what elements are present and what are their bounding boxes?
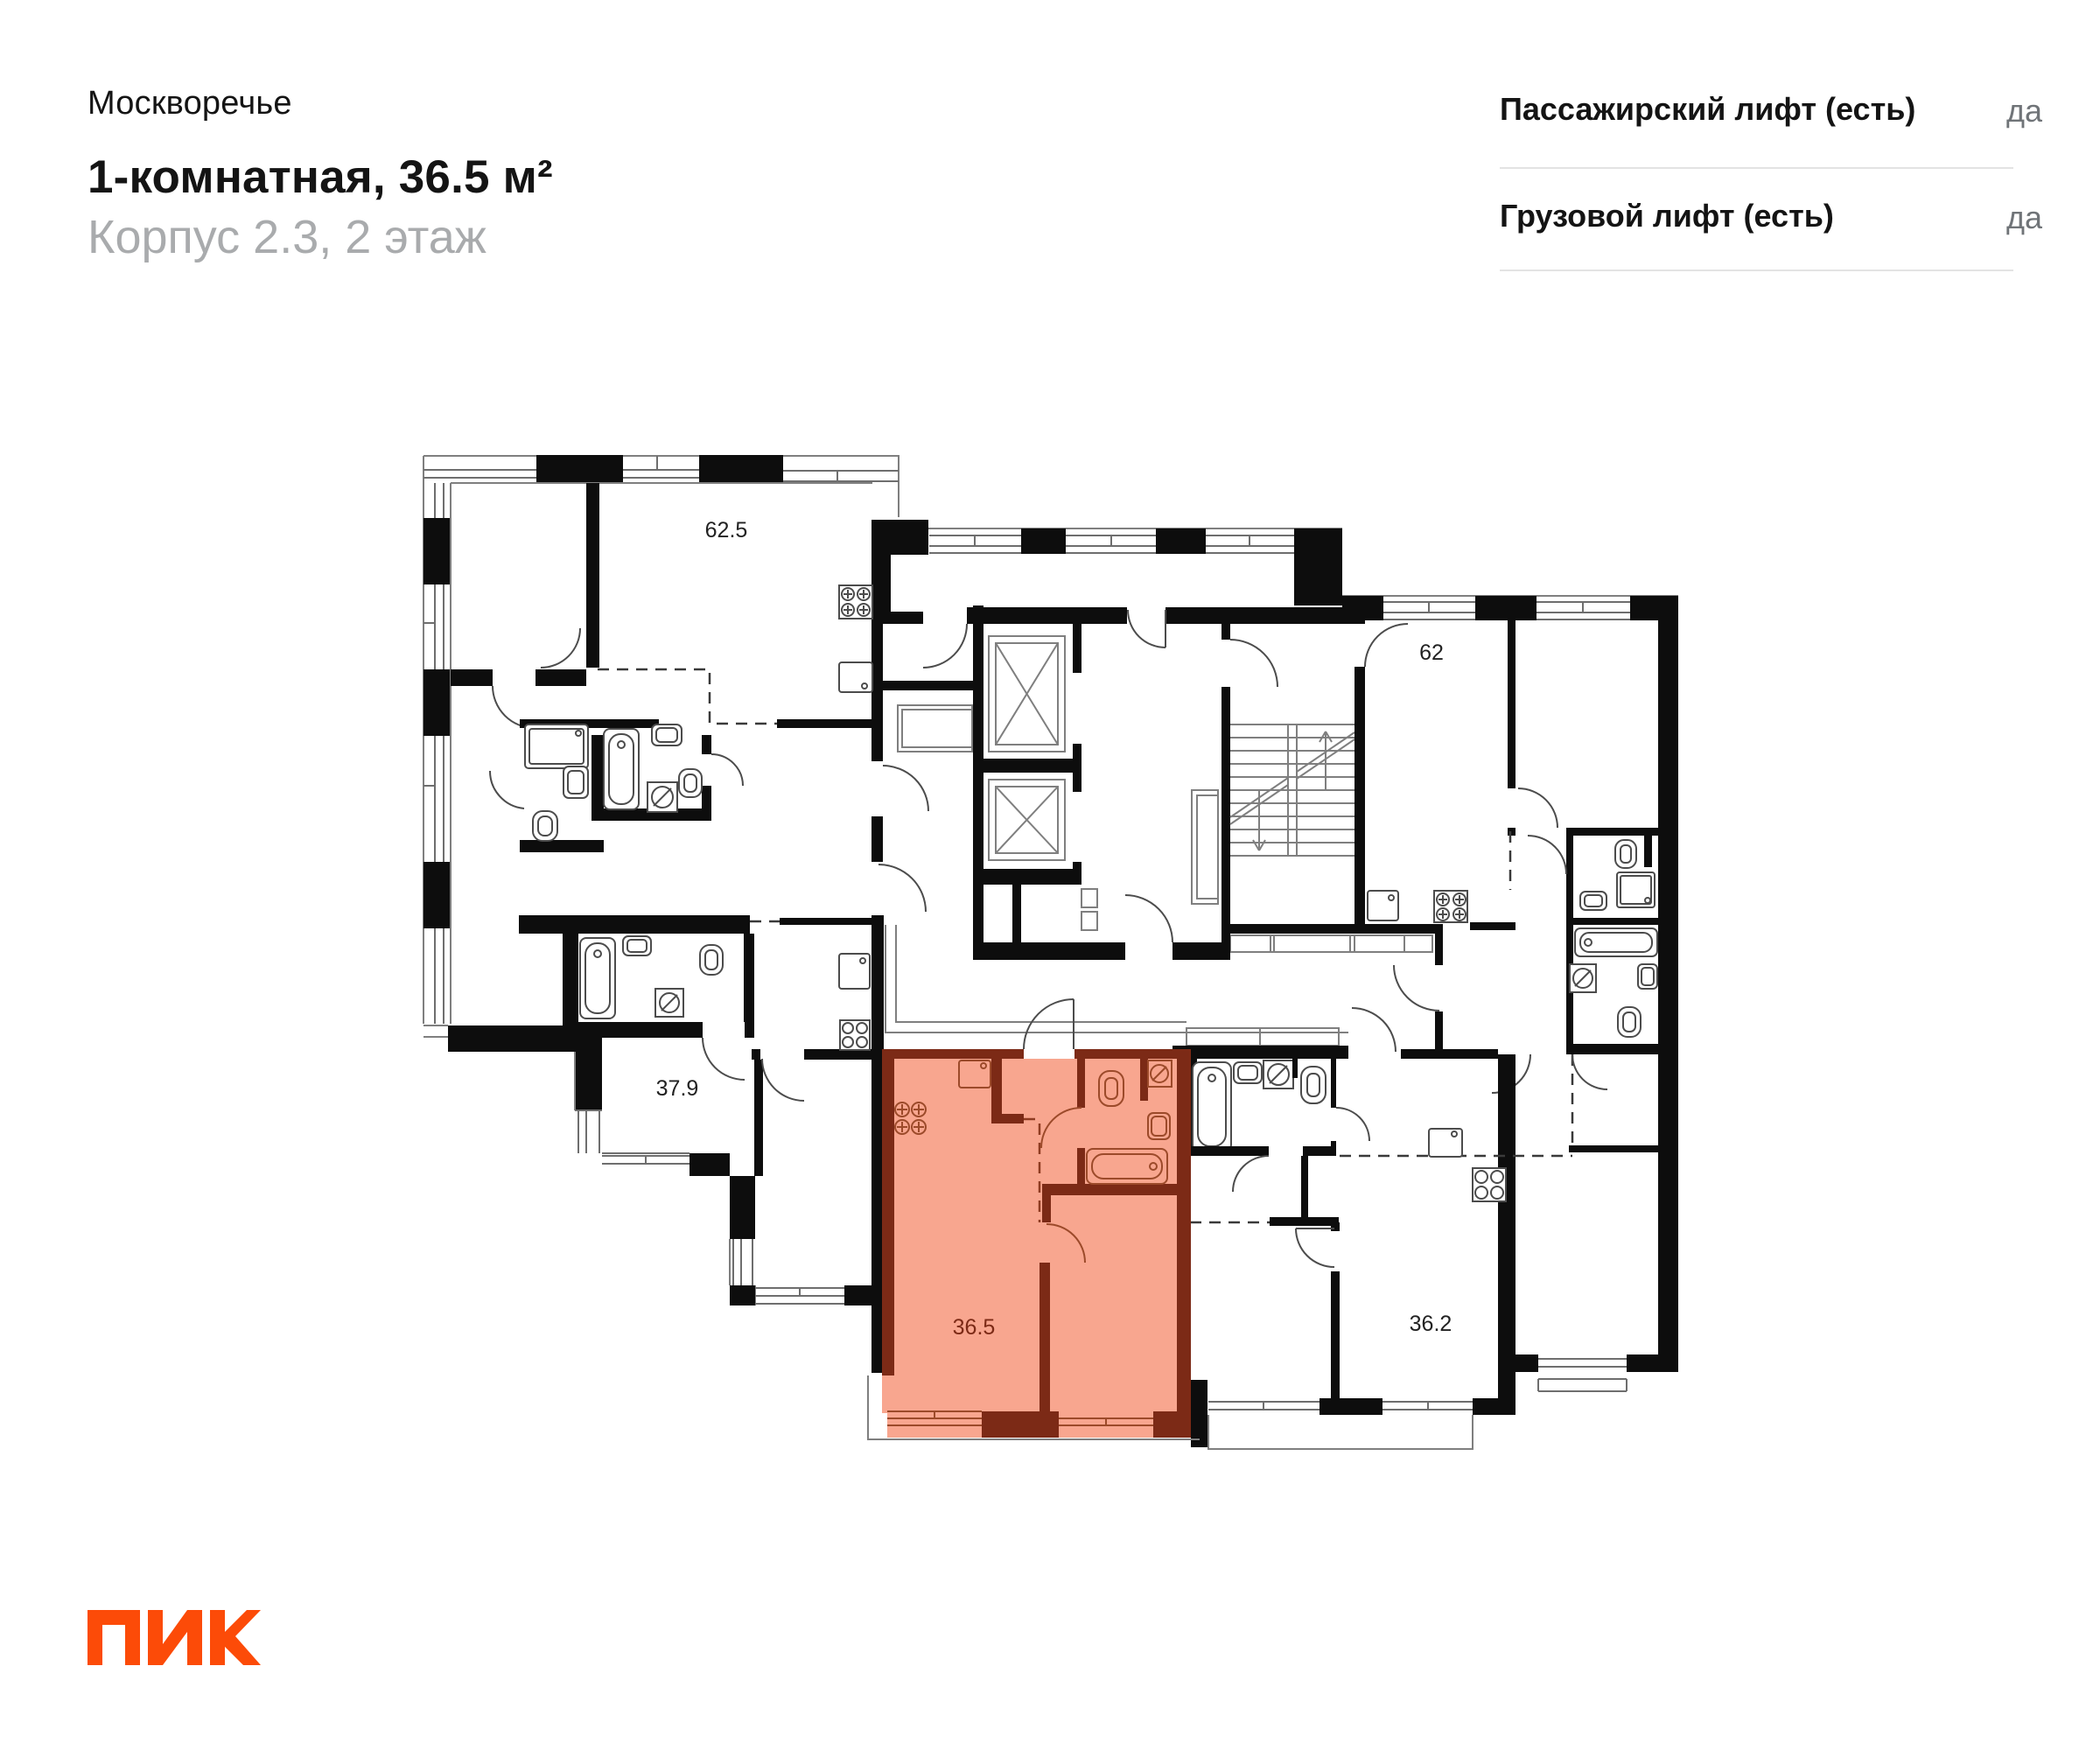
svg-text:37.9: 37.9 [656,1076,699,1101]
svg-text:36.5: 36.5 [953,1315,996,1340]
svg-text:62: 62 [1419,640,1444,665]
svg-text:62.5: 62.5 [705,518,748,542]
svg-text:36.2: 36.2 [1410,1312,1452,1336]
